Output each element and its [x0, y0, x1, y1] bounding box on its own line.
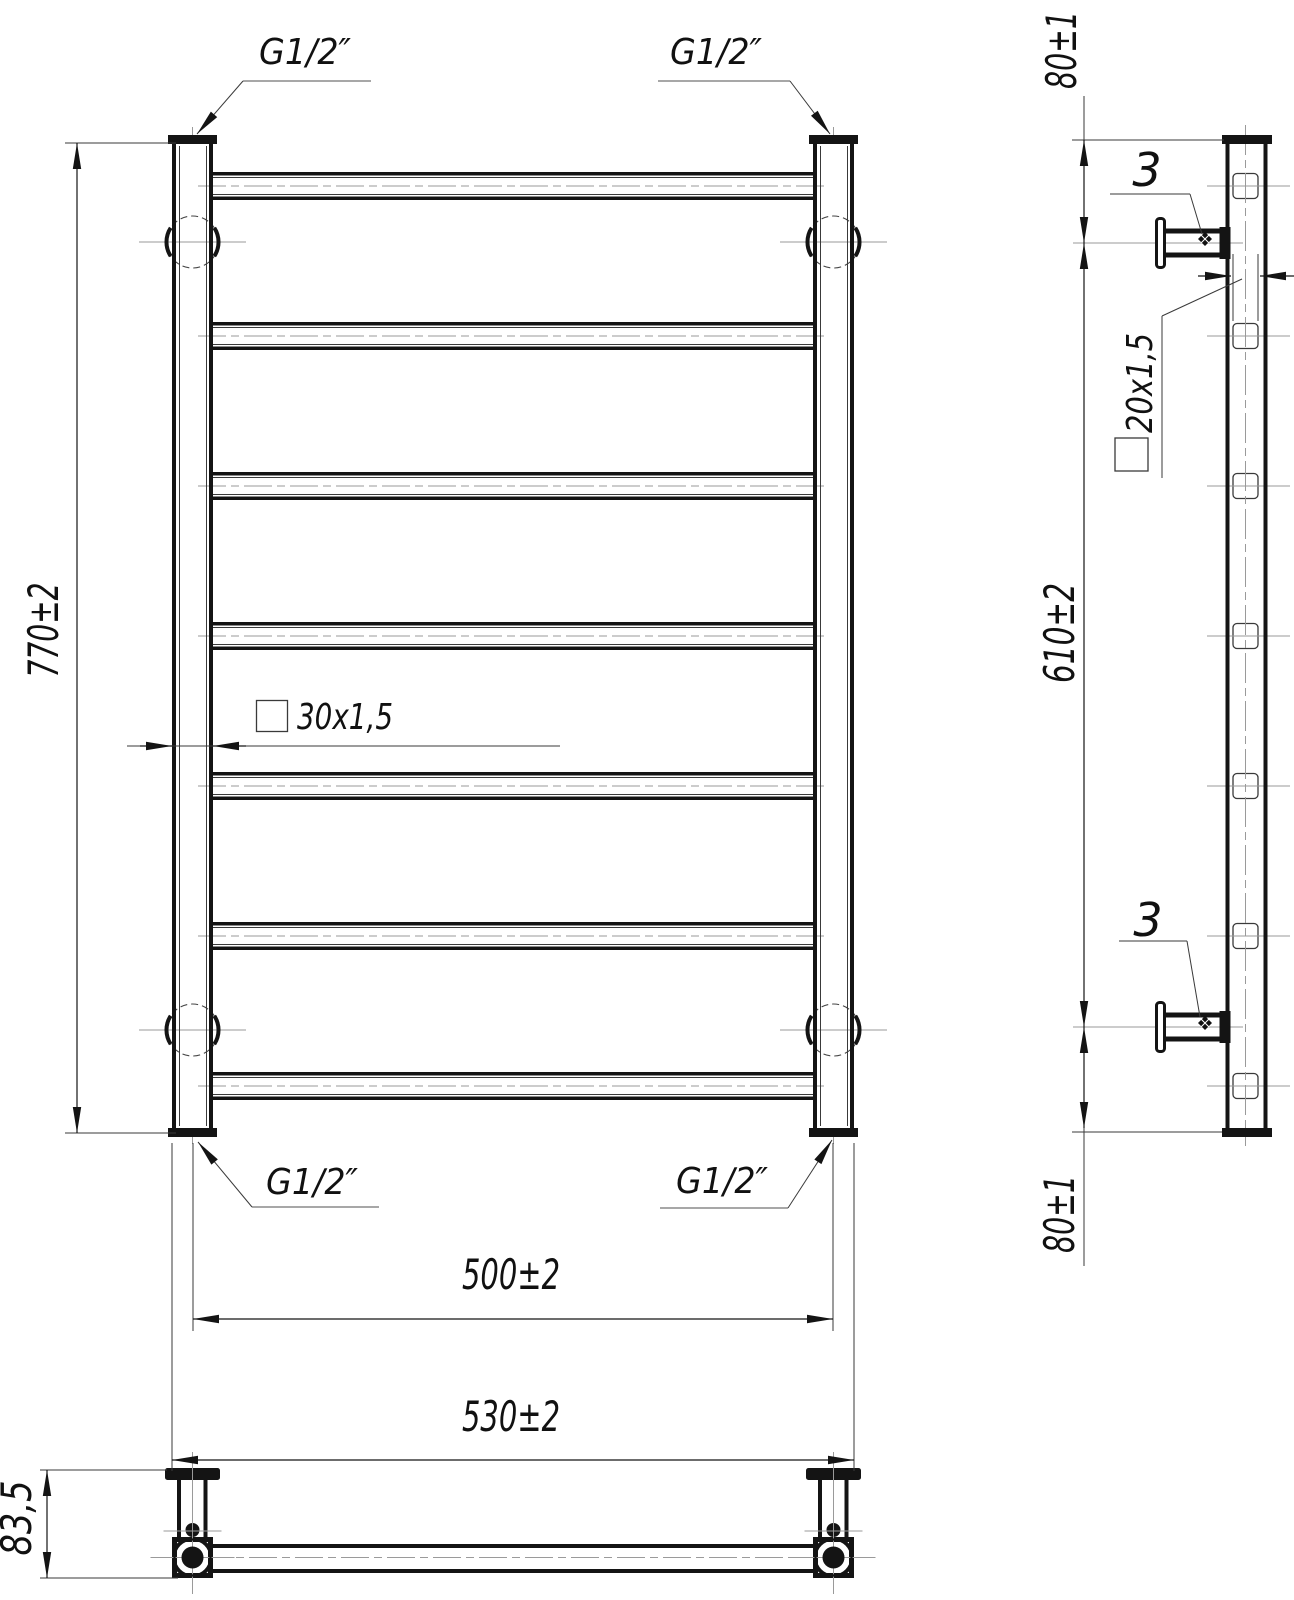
overall-width-dimension-label: 530±2: [462, 1392, 560, 1441]
side-view: [1073, 125, 1290, 1146]
screw-size-label-top: 3: [1132, 143, 1161, 197]
height-dimension-label: 770±2: [19, 583, 68, 678]
thread-label-bottom-left: G1/2″: [266, 1162, 359, 1203]
extension-lines: [40, 96, 1258, 1578]
bottom-view: [151, 1452, 876, 1594]
square-profile-symbol-side: [1115, 438, 1148, 471]
thread-label-bottom-right: G1/2″: [676, 1161, 769, 1202]
drawing-sheet: G1/2″ G1/2″ G1/2″ G1/2″ 770±2 500±2 530±…: [0, 0, 1294, 1600]
rungs: [198, 172, 828, 1100]
leader-lines: [1110, 194, 1242, 1017]
square-profile-symbol-front: [257, 701, 288, 732]
dimension-arrows: [47, 140, 1294, 1578]
rung-profile-label: 20x1,5: [1120, 333, 1161, 433]
thread-label-top-left: G1/2″: [259, 32, 352, 73]
dimension-lines: [40, 81, 1294, 1578]
bottom-tube: [213, 1544, 813, 1573]
technical-drawing: G1/2″ G1/2″ G1/2″ G1/2″ 770±2 500±2 530±…: [0, 0, 1294, 1600]
thread-label-top-right: G1/2″: [670, 32, 763, 73]
depth-dimension-label: 83,5: [0, 1481, 41, 1556]
post-profile-label: 30x1,5: [297, 697, 393, 738]
screw-size-label-bottom: 3: [1133, 893, 1162, 947]
wall-offset-bottom-label: 80±1: [1035, 1175, 1084, 1253]
front-view: [139, 127, 887, 1144]
axis-width-dimension-label: 500±2: [462, 1250, 560, 1299]
wall-offset-top-label: 80±1: [1037, 11, 1086, 89]
bracket-distance-label: 610±2: [1035, 583, 1084, 683]
